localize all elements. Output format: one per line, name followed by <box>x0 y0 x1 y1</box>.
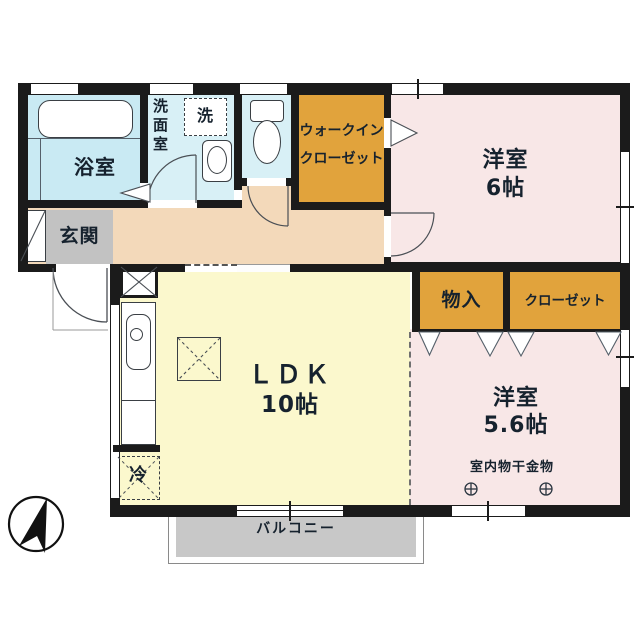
room-label-bedroom56: 洋室 <box>412 386 620 411</box>
room-label-washroom: 洗面室 <box>150 98 168 155</box>
room-label-wic-line1: ウォークイン <box>299 123 384 139</box>
room-label-wic-line2: クローゼット <box>299 151 384 167</box>
floor-plan: 浴室 洗面室 洗 ウォークイン クローゼット 洋室 6帖 玄関 ＬＤＫ 10帖 … <box>0 0 640 640</box>
folding-door-icon <box>419 332 621 356</box>
overlay-graphics <box>0 0 640 640</box>
room-size-bedroom6: 6帖 <box>391 176 620 201</box>
room-size-bedroom56: 5.6帖 <box>412 413 620 438</box>
door-swing-icon <box>391 120 417 146</box>
room-size-ldk: 10帖 <box>200 392 380 418</box>
room-label-ldk: ＬＤＫ <box>200 361 380 390</box>
room-label-storage: 物入 <box>420 290 503 312</box>
room-label-entrance: 玄関 <box>46 226 113 248</box>
north-arrow-icon <box>9 497 63 553</box>
washer-label: 洗 <box>184 107 227 125</box>
room-label-bedroom6: 洋室 <box>391 148 620 173</box>
room-label-balcony: バルコニー <box>176 521 416 537</box>
fridge-label: 冷 <box>117 466 160 487</box>
hanger-bolt-icon <box>465 483 552 495</box>
room-label-closet: クローゼット <box>510 294 620 310</box>
hanger-label: 室内物干金物 <box>412 461 612 476</box>
room-label-bath: 浴室 <box>50 156 140 179</box>
